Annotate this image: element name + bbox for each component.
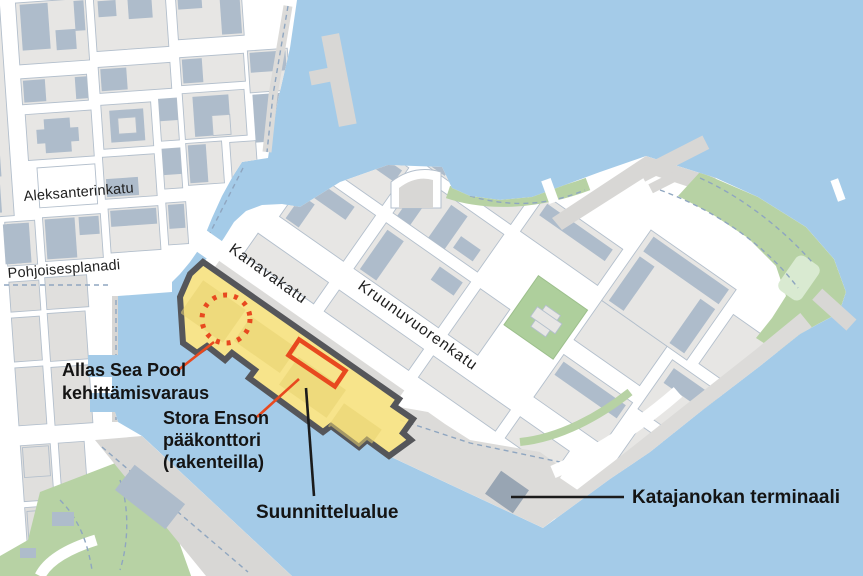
allas-label-line1: Allas Sea Pool — [62, 360, 186, 380]
stora-label-line3: (rakenteilla) — [163, 452, 264, 472]
allas-label-line2: kehittämisvaraus — [62, 383, 209, 403]
annotation-stora: Stora Enson pääkonttori (rakenteilla) — [163, 408, 269, 472]
park-building — [20, 548, 36, 558]
stora-label-line2: pääkonttori — [163, 430, 261, 450]
stora-label-line1: Stora Enson — [163, 408, 269, 428]
helsinki-katajanokka-map: Aleksanterinkatu Pohjoisesplanadi Kanava… — [0, 0, 863, 576]
terminal-label: Katajanokan terminaali — [632, 487, 840, 508]
park-building — [52, 512, 74, 526]
plan-area-label: Suunnittelualue — [256, 502, 399, 523]
map-canvas: Aleksanterinkatu Pohjoisesplanadi Kanava… — [0, 0, 863, 576]
